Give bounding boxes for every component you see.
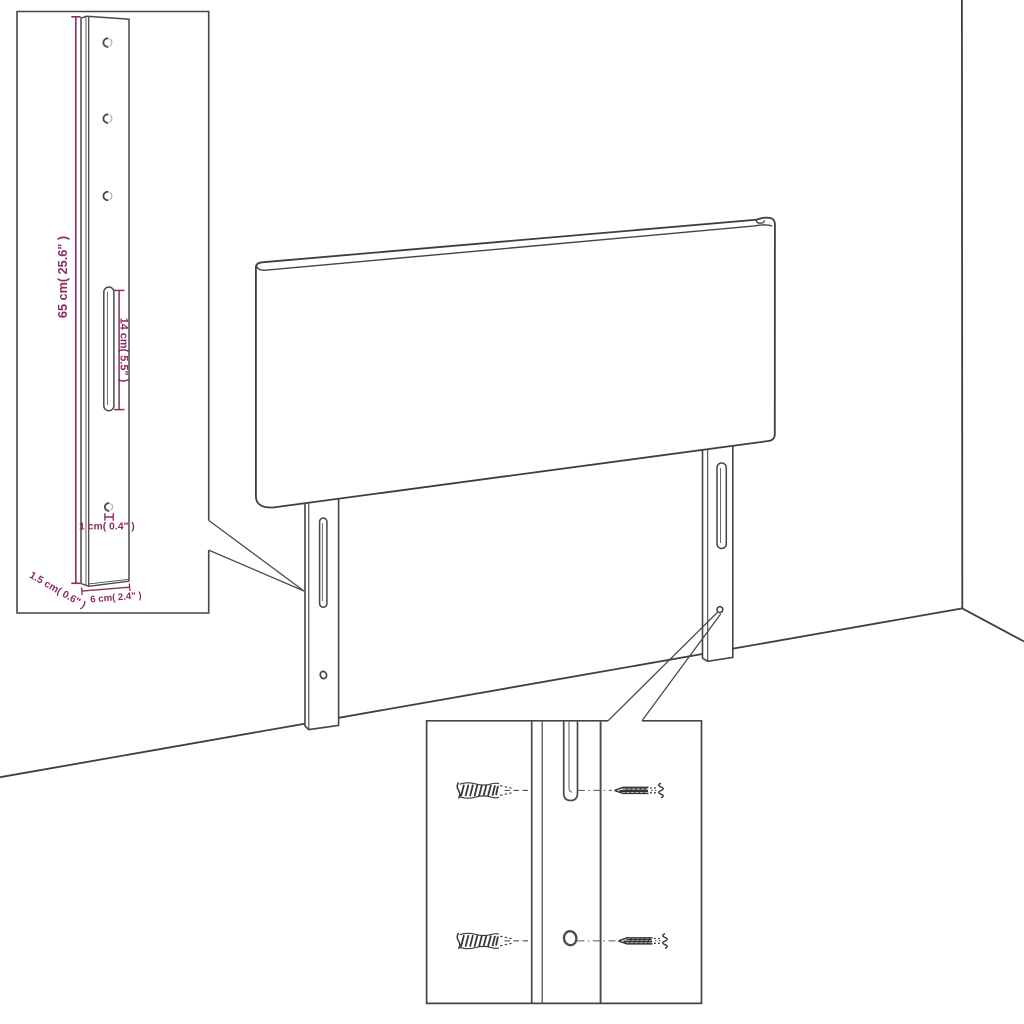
svg-text:1.5 cm( 0.6" ): 1.5 cm( 0.6" ) [27, 570, 87, 611]
svg-text:65 cm( 25.6" ): 65 cm( 25.6" ) [56, 236, 70, 318]
svg-text:1 cm( 0.4" ): 1 cm( 0.4" ) [79, 521, 135, 532]
svg-text:6 cm( 2.4" ): 6 cm( 2.4" ) [90, 590, 142, 605]
svg-text:14 cm( 5.5" ): 14 cm( 5.5" ) [117, 318, 129, 383]
